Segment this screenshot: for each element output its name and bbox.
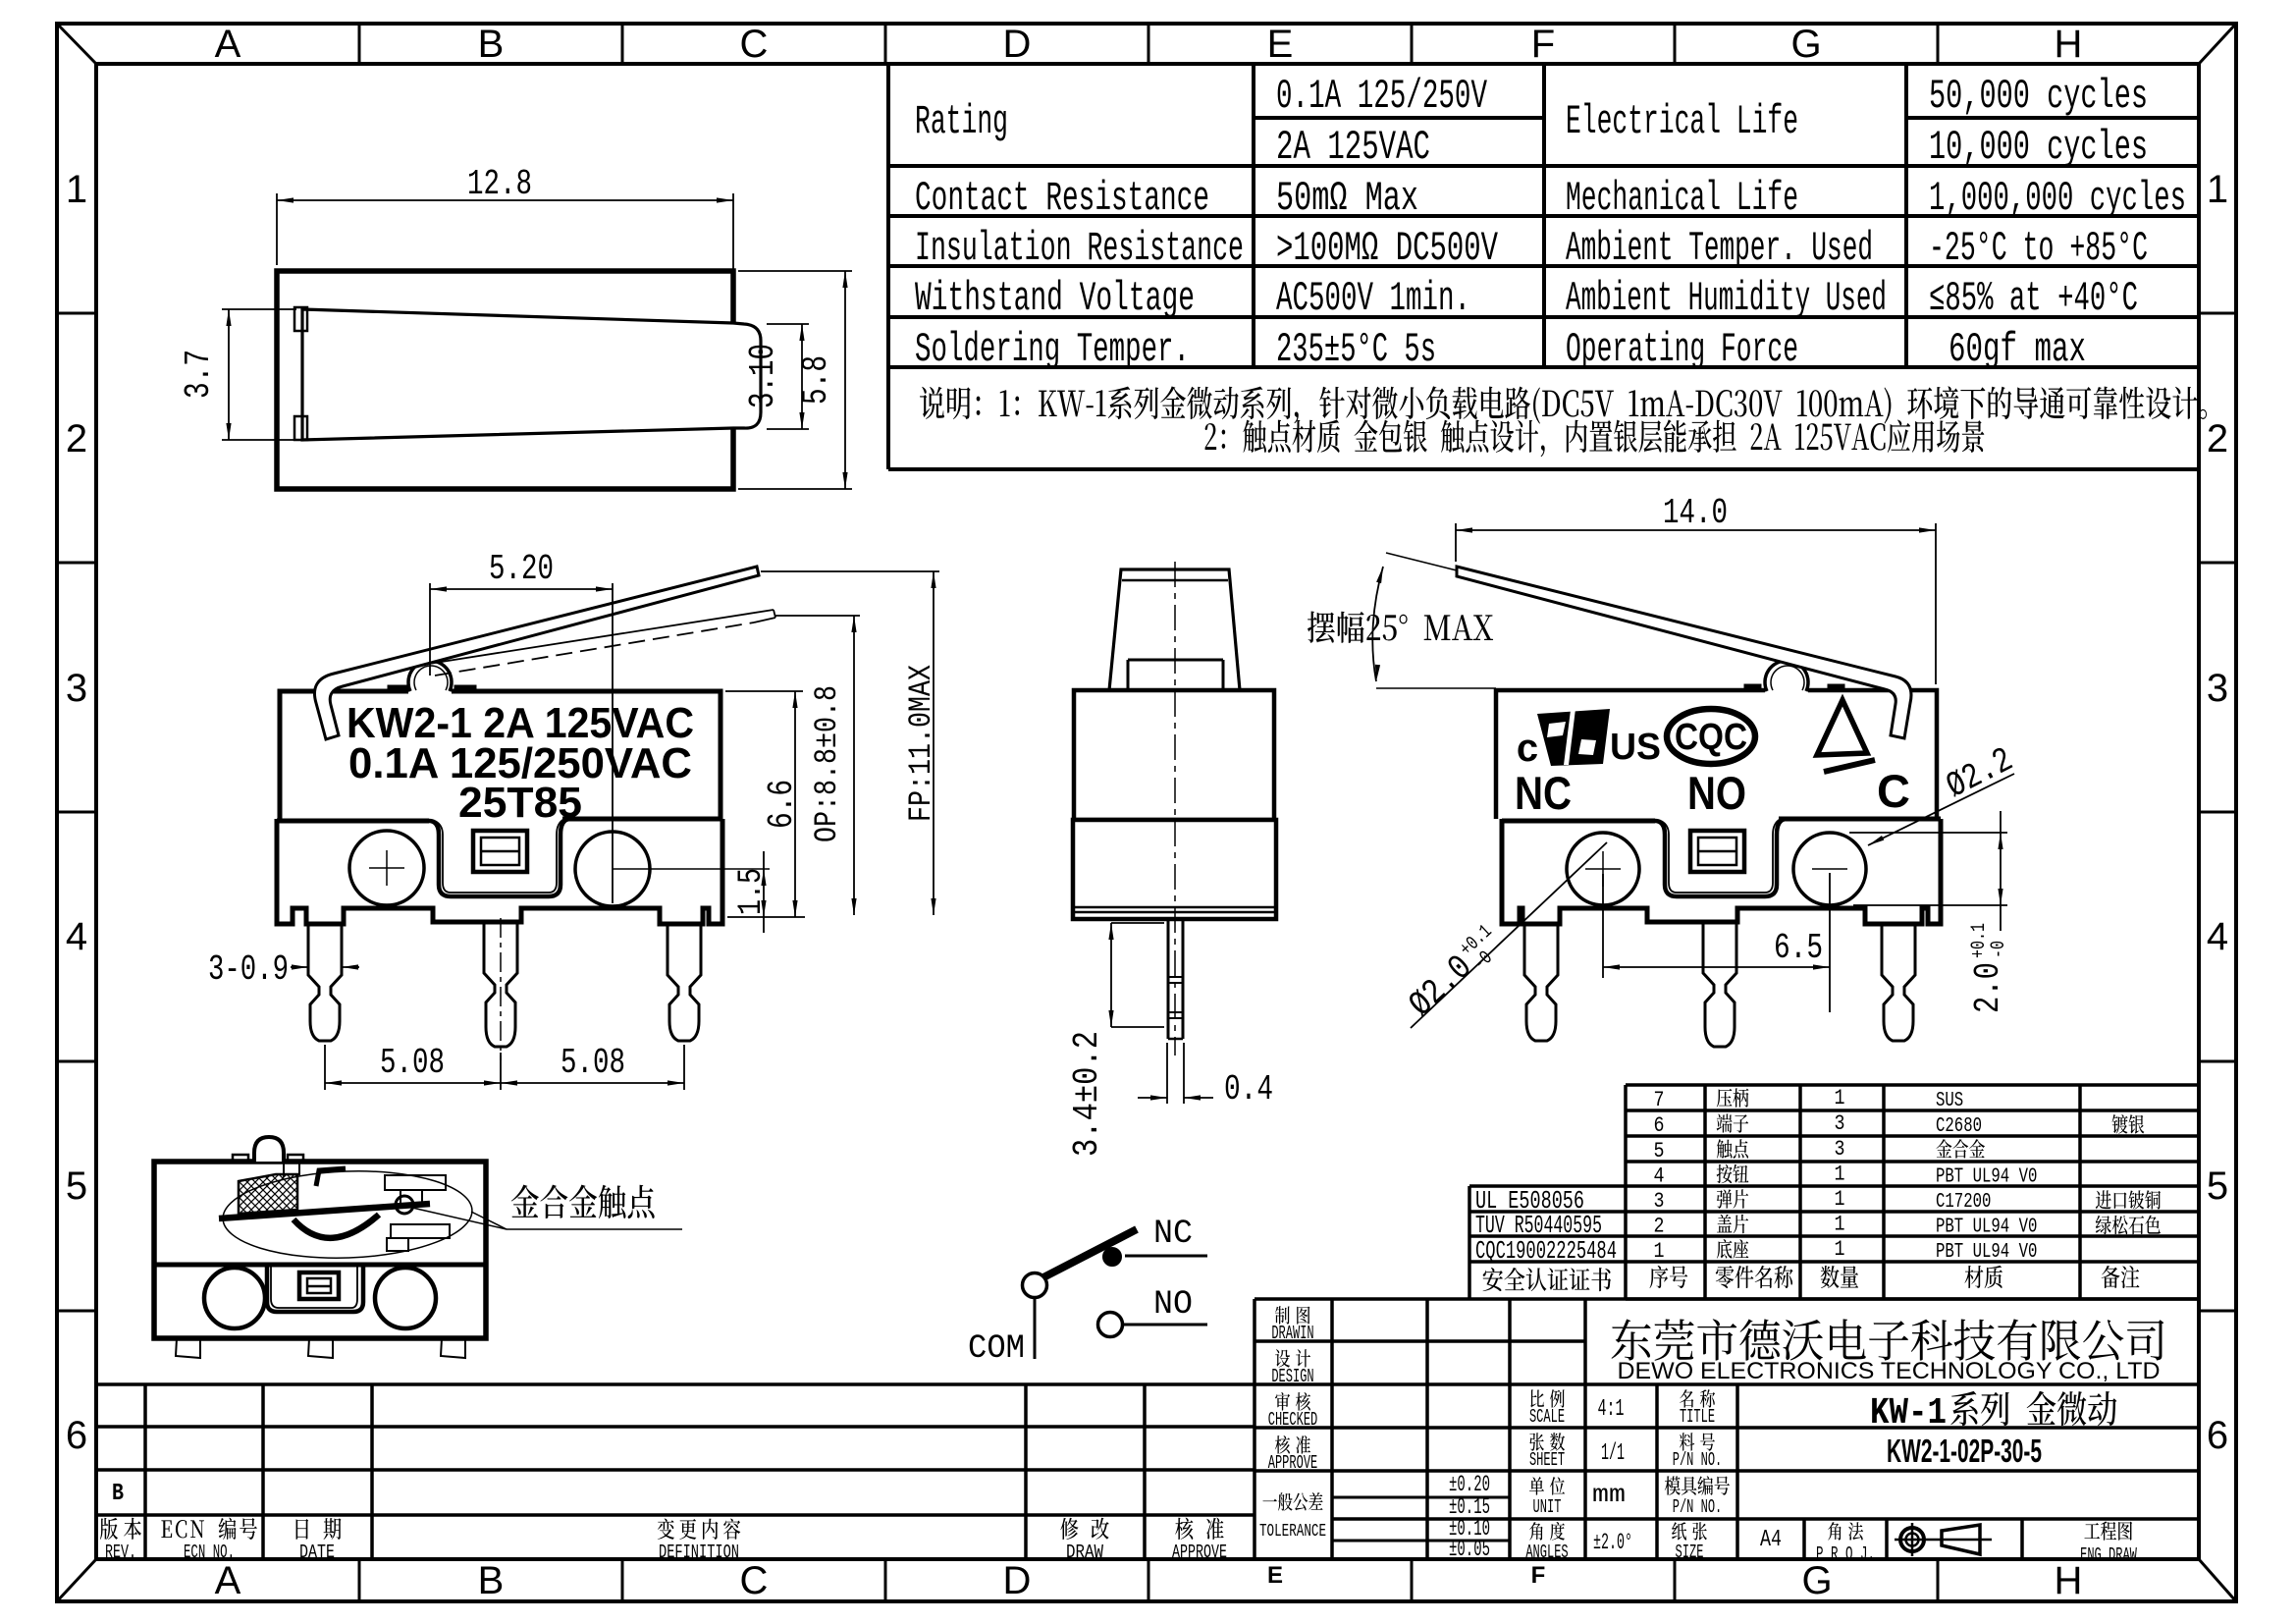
svg-text:CQC: CQC: [1675, 717, 1747, 758]
svg-text:PBT UL94 V0: PBT UL94 V0: [1936, 1166, 2037, 1189]
svg-text:5.20: 5.20: [489, 549, 554, 589]
svg-text:1,000,000 cycles: 1,000,000 cycles: [1929, 175, 2186, 222]
svg-text:3: 3: [1835, 1111, 1845, 1136]
svg-text:2: 2: [1654, 1215, 1665, 1239]
svg-text:≤85% at +40°C: ≤85% at +40°C: [1929, 275, 2138, 322]
svg-text:DEFINITION: DEFINITION: [659, 1542, 739, 1563]
svg-text:±0.05: ±0.05: [1449, 1537, 1490, 1562]
svg-text:P/N NO.: P/N NO.: [1673, 1449, 1723, 1471]
svg-text:Operating Force: Operating Force: [1566, 326, 1798, 373]
svg-text:NC: NC: [1153, 1216, 1193, 1253]
svg-text:6: 6: [2207, 1414, 2228, 1457]
svg-text:KW2-1-02P-30-5: KW2-1-02P-30-5: [1887, 1433, 2042, 1469]
svg-text:4:1: 4:1: [1598, 1396, 1625, 1423]
svg-text:50mΩ Max: 50mΩ Max: [1276, 175, 1418, 222]
svg-text:A4: A4: [1760, 1527, 1782, 1553]
svg-text:4: 4: [2207, 915, 2228, 958]
svg-text:B: B: [478, 1559, 505, 1602]
svg-text:TITLE: TITLE: [1680, 1406, 1715, 1428]
svg-text:5.08: 5.08: [561, 1043, 625, 1083]
svg-text:Ambient Humidity Used: Ambient Humidity Used: [1566, 275, 1887, 322]
svg-text:10,000 cycles: 10,000 cycles: [1929, 124, 2148, 171]
svg-text:60gf max: 60gf max: [1949, 326, 2086, 373]
svg-text:5: 5: [66, 1164, 87, 1208]
svg-text:NO: NO: [1687, 767, 1746, 819]
svg-text:±2.0°: ±2.0°: [1593, 1530, 1632, 1555]
svg-text:COM: COM: [968, 1330, 1025, 1368]
svg-text:3: 3: [66, 667, 87, 710]
svg-text:Electrical Life: Electrical Life: [1566, 98, 1798, 145]
svg-text:REV.: REV.: [105, 1542, 136, 1563]
svg-text:-0: -0: [1988, 941, 2010, 958]
svg-text:6.6: 6.6: [762, 780, 802, 829]
svg-text:3.7: 3.7: [179, 350, 219, 399]
svg-text:SUS: SUS: [1936, 1090, 1963, 1112]
svg-text:1: 1: [1835, 1213, 1845, 1237]
svg-text:2.0: 2.0: [1968, 962, 2008, 1013]
svg-text:Soldering Temper.: Soldering Temper.: [915, 326, 1190, 373]
svg-text:1: 1: [1654, 1239, 1665, 1264]
svg-text:3: 3: [1835, 1137, 1845, 1162]
svg-text:SIZE: SIZE: [1676, 1542, 1704, 1563]
svg-text:12.8: 12.8: [467, 164, 532, 204]
svg-text:SHEET: SHEET: [1529, 1449, 1565, 1471]
svg-text:US: US: [1610, 727, 1661, 768]
svg-text:5: 5: [1654, 1139, 1665, 1164]
svg-text:1: 1: [1835, 1086, 1845, 1110]
svg-text:4: 4: [66, 915, 87, 958]
svg-text:1: 1: [2207, 168, 2228, 211]
svg-text:A: A: [215, 1559, 241, 1602]
svg-text:2: 2: [2207, 417, 2228, 460]
svg-text:F: F: [1531, 23, 1555, 66]
svg-text:1/1: 1/1: [1601, 1440, 1625, 1467]
svg-text:Mechanical Life: Mechanical Life: [1566, 175, 1798, 222]
svg-text:4: 4: [1654, 1164, 1665, 1189]
svg-text:E: E: [1267, 23, 1294, 66]
svg-text:SCALE: SCALE: [1529, 1406, 1565, 1428]
svg-text:0.4: 0.4: [1224, 1069, 1273, 1110]
svg-text:DEWO ELECTRONICS TECHNOLOGY CO: DEWO ELECTRONICS TECHNOLOGY CO., LTD: [1618, 1358, 2161, 1384]
svg-text:2: 2: [66, 417, 87, 460]
svg-text:>100MΩ DC500V: >100MΩ DC500V: [1276, 225, 1498, 272]
svg-text:ANGLES: ANGLES: [1525, 1542, 1568, 1563]
svg-text:FP:11.0MAX: FP:11.0MAX: [903, 665, 939, 822]
svg-text:P R O J.: P R O J.: [1816, 1543, 1875, 1565]
svg-text:ENG DRAW: ENG DRAW: [2080, 1544, 2137, 1566]
svg-text:6: 6: [66, 1414, 87, 1457]
svg-text:PBT UL94 V0: PBT UL94 V0: [1936, 1241, 2037, 1264]
svg-text:3.10: 3.10: [743, 344, 783, 408]
svg-text:C: C: [1877, 765, 1910, 817]
svg-text:G: G: [1801, 1559, 1832, 1602]
svg-text:DRAW: DRAW: [1066, 1542, 1103, 1563]
svg-text:5.8: 5.8: [796, 355, 836, 405]
svg-text:ECN NO.: ECN NO.: [184, 1542, 235, 1563]
svg-text:mm: mm: [1592, 1481, 1626, 1509]
svg-text:D: D: [1003, 1559, 1032, 1602]
svg-text:0.1A 125/250V: 0.1A 125/250V: [1276, 73, 1487, 120]
svg-text:6: 6: [1654, 1113, 1665, 1138]
svg-text:E: E: [1267, 1562, 1283, 1589]
svg-text:DATE: DATE: [299, 1542, 335, 1563]
svg-text:C17200: C17200: [1936, 1191, 1991, 1214]
svg-text:NC: NC: [1515, 767, 1572, 819]
svg-text:5: 5: [2207, 1164, 2228, 1208]
svg-text:50,000 cycles: 50,000 cycles: [1929, 73, 2148, 120]
svg-text:B: B: [478, 23, 505, 66]
svg-text:APPROVE: APPROVE: [1268, 1452, 1318, 1474]
svg-text:DESIGN: DESIGN: [1271, 1366, 1313, 1387]
svg-text:Withstand Voltage: Withstand Voltage: [915, 275, 1195, 322]
svg-text:C: C: [740, 1559, 769, 1602]
svg-text:3: 3: [1654, 1189, 1665, 1214]
svg-text:2A 125VAC: 2A 125VAC: [1276, 124, 1430, 171]
svg-text:KW-1: KW-1: [1870, 1392, 1947, 1435]
svg-text:6.5: 6.5: [1774, 928, 1823, 968]
svg-text:P/N NO.: P/N NO.: [1673, 1496, 1723, 1518]
svg-text:OP:8.8±0.8: OP:8.8±0.8: [809, 685, 845, 842]
svg-text:Ambient Temper. Used: Ambient Temper. Used: [1566, 225, 1873, 272]
svg-text:C2680: C2680: [1936, 1115, 1982, 1138]
svg-text:5.08: 5.08: [380, 1043, 445, 1083]
svg-text:G: G: [1790, 23, 1821, 66]
svg-text:1: 1: [1835, 1187, 1845, 1212]
svg-text:NO: NO: [1153, 1286, 1193, 1324]
svg-text:CQC19002225484: CQC19002225484: [1475, 1236, 1617, 1266]
svg-text:1: 1: [1835, 1237, 1845, 1262]
svg-text:F: F: [1531, 1562, 1546, 1589]
svg-text:C: C: [740, 23, 769, 66]
svg-text:D: D: [1003, 23, 1032, 66]
svg-text:TOLERANCE: TOLERANCE: [1259, 1522, 1326, 1542]
svg-text:H: H: [2055, 23, 2083, 66]
svg-text:Rating: Rating: [915, 98, 1008, 145]
svg-text:DRAWIN: DRAWIN: [1271, 1323, 1313, 1344]
svg-text:A: A: [215, 23, 241, 66]
svg-text:B: B: [112, 1481, 124, 1507]
svg-text:AC500V 1min.: AC500V 1min.: [1276, 275, 1470, 322]
svg-text:25T85: 25T85: [458, 779, 582, 827]
svg-text:1: 1: [66, 168, 87, 211]
svg-text:1.5: 1.5: [733, 868, 771, 915]
svg-text:235±5°C 5s: 235±5°C 5s: [1276, 326, 1436, 373]
svg-text:7: 7: [1654, 1088, 1665, 1112]
svg-text:CHECKED: CHECKED: [1268, 1409, 1318, 1431]
svg-text:Contact Resistance: Contact Resistance: [915, 175, 1209, 222]
svg-text:c: c: [1517, 727, 1538, 770]
svg-text:H: H: [2055, 1559, 2083, 1602]
svg-text:3.4±0.2: 3.4±0.2: [1067, 1031, 1107, 1157]
svg-text:Insulation Resistance: Insulation Resistance: [915, 225, 1244, 272]
svg-text:3: 3: [2207, 667, 2228, 710]
svg-text:-25°C to +85°C: -25°C to +85°C: [1929, 225, 2148, 272]
svg-text:UNIT: UNIT: [1533, 1496, 1562, 1518]
svg-text:PBT UL94 V0: PBT UL94 V0: [1936, 1217, 2037, 1239]
svg-text:1: 1: [1835, 1163, 1845, 1187]
svg-text:APPROVE: APPROVE: [1172, 1542, 1227, 1563]
svg-text:14.0: 14.0: [1663, 493, 1728, 533]
svg-text:3-0.9: 3-0.9: [208, 949, 289, 990]
